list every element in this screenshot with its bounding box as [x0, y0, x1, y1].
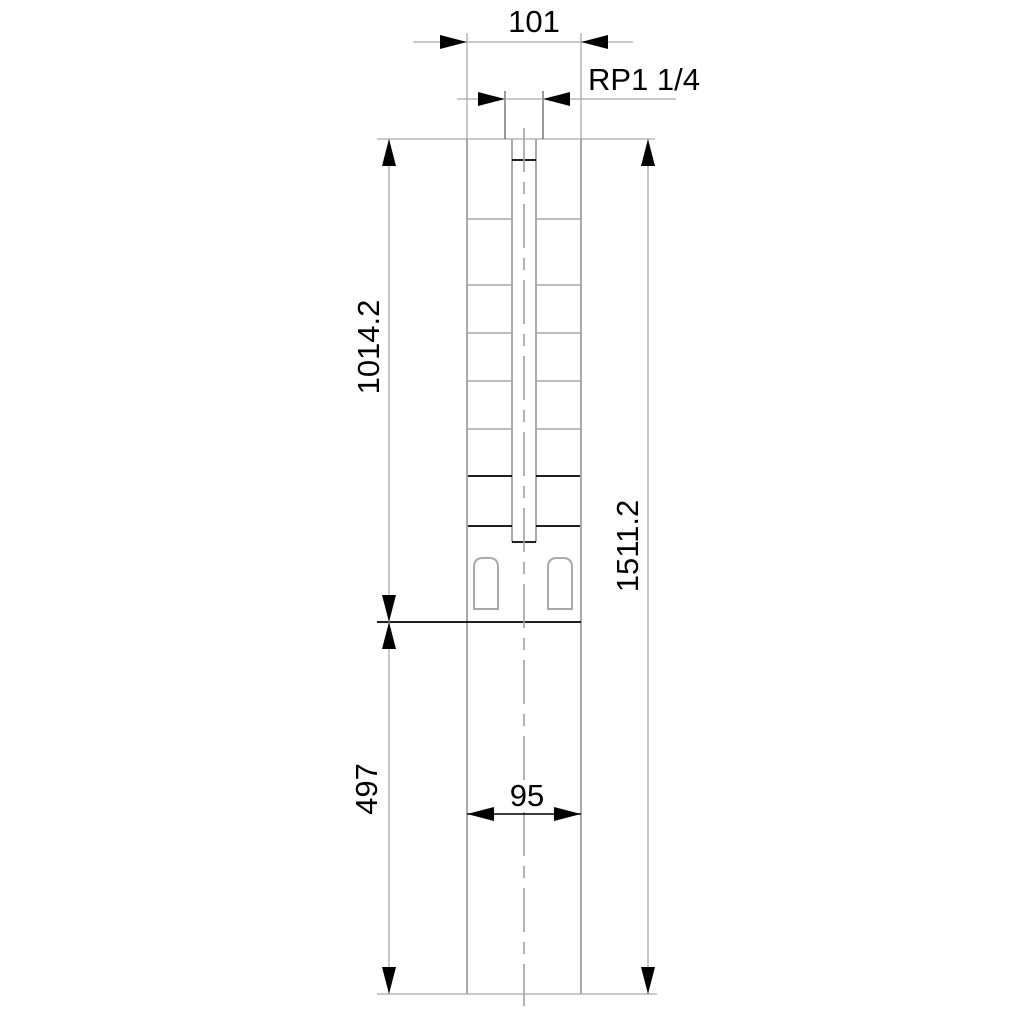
arrowhead-down-icon	[382, 967, 396, 994]
arrowhead-left-icon	[543, 92, 570, 106]
arrowhead-right-icon	[554, 807, 581, 821]
arrowhead-down-icon	[641, 967, 655, 994]
arrowhead-up-icon	[382, 622, 396, 649]
dim-label-total-length: 1511.2	[610, 500, 645, 593]
dim-label-thread: RP1 1/4	[588, 62, 700, 97]
arrowhead-up-icon	[382, 139, 396, 166]
arrowhead-left-icon	[581, 35, 608, 49]
slot-right	[548, 558, 572, 609]
dim-thread: RP1 1/4	[457, 62, 700, 139]
dim-left-column: 1014.2 497	[349, 139, 396, 994]
pump-body	[377, 139, 581, 994]
dim-label-top-width: 101	[508, 4, 560, 39]
drawing-canvas: 101 RP1 1/4 1014.2 497 1511.2 95	[0, 0, 1024, 1024]
dim-label-bottom-width: 95	[510, 778, 544, 813]
arrowhead-left-icon	[467, 807, 494, 821]
dim-total-length: 1511.2	[610, 139, 655, 994]
cable-guard-slots	[474, 558, 572, 609]
arrowhead-down-icon	[382, 595, 396, 622]
dim-bottom-width: 95	[467, 778, 581, 821]
dim-label-upper-length: 1014.2	[351, 300, 386, 395]
dim-label-lower-length: 497	[349, 763, 384, 815]
arrowhead-right-icon	[440, 35, 467, 49]
arrowhead-right-icon	[478, 92, 505, 106]
slot-left	[474, 558, 498, 609]
arrowhead-up-icon	[641, 139, 655, 166]
pump-dimension-drawing: 101 RP1 1/4 1014.2 497 1511.2 95	[0, 0, 1024, 1024]
